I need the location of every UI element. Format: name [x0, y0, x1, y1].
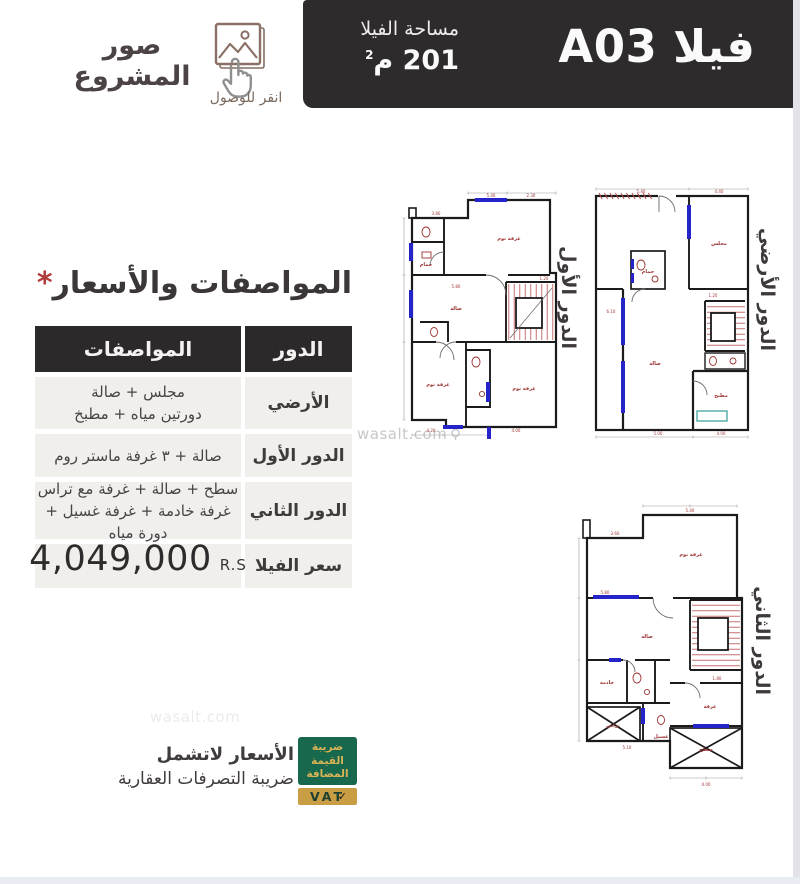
vat-badge-latin: VAT ✓: [298, 788, 357, 805]
vat-badge-arabic: ضريبة القيمة المضافة: [298, 737, 357, 785]
dim-label: 4.20: [427, 428, 436, 433]
plan-label-second-floor: الدور الثاني: [751, 595, 773, 695]
floor-name: الدور الثاني: [245, 482, 352, 539]
room-label: صالة: [450, 306, 462, 312]
dim-label: 5.40: [686, 508, 695, 513]
table-row: الأرضي مجلس + صالة دورتين مياه + مطبخ: [35, 377, 352, 429]
dim-label: 2.30: [527, 193, 536, 198]
room-label: سطح: [699, 747, 712, 753]
watermark-faint: wasalt.com: [150, 708, 240, 726]
dim-label: 4.00: [512, 428, 521, 433]
page-edge-bottom: [0, 877, 800, 884]
price-value: 4,049,000: [29, 548, 212, 570]
room-label: مجلس: [711, 241, 727, 247]
column-header-specs: المواصفات: [35, 326, 241, 372]
floor-specs: مجلس + صالة دورتين مياه + مطبخ: [35, 377, 241, 429]
room-label: صالة: [649, 361, 661, 367]
dim-label: 1.20: [709, 293, 718, 298]
dim-label: 5.10: [623, 745, 632, 750]
price-currency: R.S: [220, 554, 247, 576]
header-banner: فيلا A03 مساحة الفيلا 201 م2: [303, 0, 793, 108]
spec-line: مجلس + صالة: [91, 381, 185, 403]
dim-label: 5.00: [654, 431, 663, 436]
project-photos-label: صور المشروع: [52, 30, 212, 92]
dim-label: 5.80: [601, 590, 610, 595]
room-label: خادمة: [600, 680, 615, 686]
room-label: تراس: [606, 723, 620, 729]
spec-line: غرفة خادمة + غرفة غسيل + دورة مياه: [35, 500, 241, 544]
disclaimer-line: الأسعار لاتشمل: [108, 742, 294, 767]
floor-plan-second-floor: غرفة نوم صالة خادمة غسيل غرفة تراس سطح 5…: [565, 498, 765, 790]
area-value: 201 م2: [333, 45, 459, 76]
specs-heading: المواصفات والأسعار*: [20, 266, 352, 301]
room-label: حمام: [642, 269, 655, 275]
area-number: 201: [403, 45, 459, 76]
floor-specs: صالة + ٣ غرفة ماستر روم: [35, 434, 241, 477]
watermark-text: wasalt.com: [150, 708, 240, 726]
column-header-floor: الدور: [245, 326, 352, 372]
dim-label: 4.00: [702, 782, 711, 787]
floor-specs: سطح + صالة + غرفة مع تراس غرفة خادمة + غ…: [35, 482, 241, 539]
dim-label: 5.40: [637, 189, 646, 194]
spec-line: صالة + ٣ غرفة ماستر روم: [54, 445, 221, 467]
dim-label: 3.60: [611, 531, 620, 536]
area-label: مساحة الفيلا: [333, 18, 459, 40]
dim-label: 4.40: [715, 189, 724, 194]
room-label: غرفة نوم: [497, 236, 520, 242]
floor-plan-ground-floor: مجلس صالة مطبخ حمام 5.40 4.40 6.10 5.00 …: [593, 183, 753, 441]
room-label: غرفة نوم: [679, 552, 702, 558]
spec-line: دورتين مياه + مطبخ: [74, 403, 202, 425]
plan-label-ground-floor: الدور الأرضي: [756, 249, 778, 351]
room-label: غرفة: [704, 704, 717, 710]
villa-title: فيلا A03: [558, 20, 755, 73]
plan-label-first-floor: الدور الأول: [557, 259, 579, 349]
page-edge-right: [793, 0, 800, 884]
disclaimer-line: ضريبة التصرفات العقارية: [108, 767, 294, 792]
required-asterisk: *: [37, 266, 53, 301]
vat-badge-line: القيمة: [300, 755, 355, 769]
page: فيلا A03 مساحة الفيلا 201 م2 صور المشروع: [0, 0, 800, 884]
villa-price: 4,049,000 R.S: [35, 544, 241, 588]
specs-heading-text: المواصفات والأسعار: [53, 266, 352, 301]
area-unit: م2: [365, 45, 393, 76]
table-row: الدور الثاني سطح + صالة + غرفة مع تراس غ…: [35, 482, 352, 539]
dim-label: 6.10: [607, 309, 616, 314]
table-row-price: سعر الفيلا 4,049,000 R.S: [35, 544, 352, 588]
room-label: غرفة نوم: [426, 382, 449, 388]
dim-label: 5.80: [452, 284, 461, 289]
price-disclaimer: الأسعار لاتشمل ضريبة التصرفات العقارية: [108, 742, 294, 792]
dim-label: 1.20: [540, 276, 549, 281]
room-label: حمام: [420, 262, 433, 268]
dim-label: 3.80: [432, 211, 441, 216]
villa-area: مساحة الفيلا 201 م2: [333, 18, 459, 76]
table-row: الدور الأول صالة + ٣ غرفة ماستر روم: [35, 434, 352, 477]
dim-label: 4.00: [717, 431, 726, 436]
check-icon: ✓: [338, 788, 347, 805]
floor-name: الأرضي: [245, 377, 352, 429]
room-label: غسيل: [653, 734, 668, 740]
dim-label: 5.40: [487, 193, 496, 198]
project-photos-button[interactable]: صور المشروع انقر للوصول: [40, 14, 280, 114]
vat-badge-line: ضريبة: [300, 741, 355, 755]
click-to-access-label: انقر للوصول: [190, 90, 302, 106]
price-label: سعر الفيلا: [245, 544, 352, 588]
floor-name: الدور الأول: [245, 434, 352, 477]
dim-label: 1.80: [713, 676, 722, 681]
specs-table: الدور المواصفات الأرضي مجلس + صالة دورتي…: [35, 326, 352, 593]
spec-line: سطح + صالة + غرفة مع تراس: [38, 478, 239, 500]
vat-badge-line: المضافة: [300, 768, 355, 782]
table-header-row: الدور المواصفات: [35, 326, 352, 372]
vat-badge: ضريبة القيمة المضافة VAT ✓: [298, 737, 357, 805]
room-label: غرفة نوم: [512, 386, 535, 392]
floor-plan-first-floor: غرفة نوم حمام صالة غرفة نوم غرفة نوم 5.4…: [396, 190, 560, 440]
room-label: مطبخ: [714, 393, 728, 399]
room-label: صالة: [641, 634, 653, 640]
